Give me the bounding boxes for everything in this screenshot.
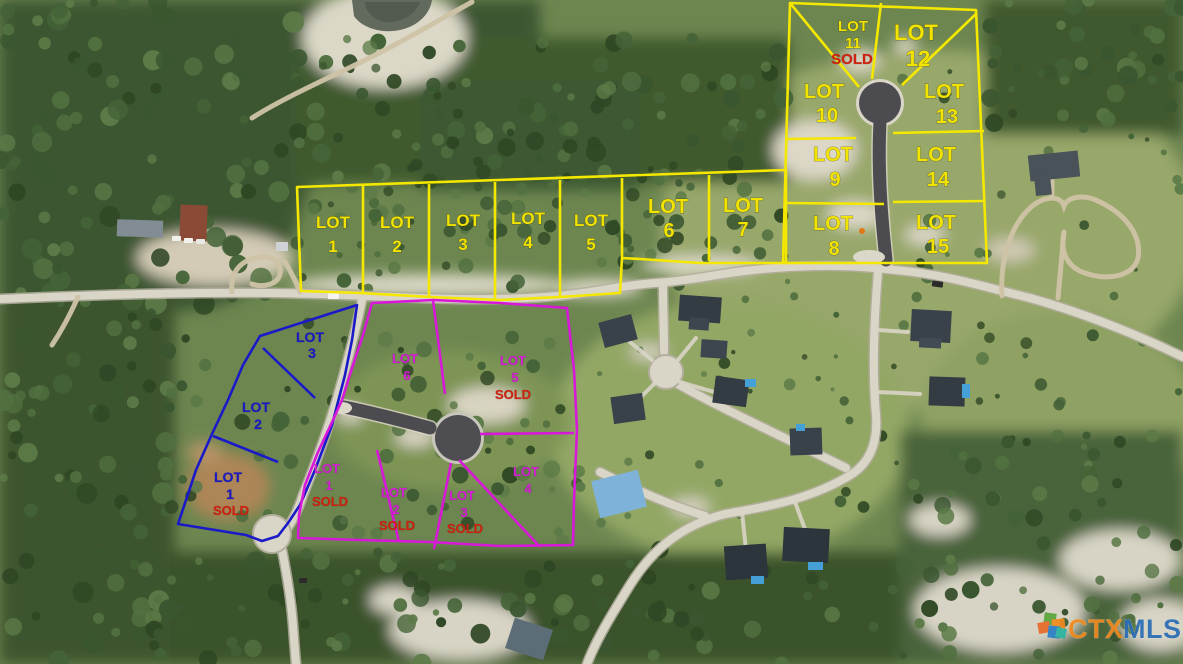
- yellow-lot-11-status: SOLD: [831, 51, 873, 68]
- watermark-mls-text: MLS: [1123, 614, 1182, 644]
- magenta-lot-2-number: 2: [392, 502, 399, 517]
- magenta-lot-1-status: SOLD: [312, 494, 348, 509]
- magenta-lot-2-word: LOT: [381, 485, 407, 500]
- magenta-lot-5-number: 5: [511, 370, 518, 385]
- magenta-lot-3-number: 3: [460, 505, 467, 520]
- yellow-lot-10-word: LOT: [804, 81, 844, 103]
- magenta-lot-4-number: 4: [524, 481, 532, 496]
- yellow-lot-1-word: LOT: [316, 213, 351, 232]
- magenta-lot-5-status: SOLD: [495, 387, 531, 402]
- yellow-lot-3-number: 3: [458, 235, 467, 254]
- yellow-lot-2-number: 2: [392, 237, 401, 256]
- blue-lot-1-number: 1: [226, 486, 234, 502]
- yellow-lot-9-number: 9: [829, 169, 840, 191]
- magenta-lot-6-number: 6: [403, 368, 410, 383]
- magenta-lot-4-word: LOT: [513, 464, 539, 479]
- yellow-lot-4-word: LOT: [511, 209, 546, 228]
- yellow-lot-7-word: LOT: [723, 195, 763, 217]
- cul-de-sac-southwest: [253, 515, 291, 553]
- yellow-lot-4-number: 4: [523, 233, 533, 252]
- watermark-ctx-text: CTX: [1068, 614, 1124, 644]
- terrain-layer: [0, 0, 1183, 664]
- aerial-lot-map-photo: LOT 1 LOT 2 LOT 3 LOT 4 LOT 5 LOT 6 LOT …: [0, 0, 1183, 664]
- yellow-lot-13-word: LOT: [924, 81, 964, 103]
- yellow-lot-15-number: 15: [927, 236, 949, 258]
- yellow-lot-6-word: LOT: [648, 196, 688, 218]
- yellow-lot-5-word: LOT: [574, 211, 609, 230]
- magenta-lot-1-number: 1: [325, 478, 332, 493]
- yellow-lot-12-word: LOT: [894, 20, 939, 45]
- yellow-lot-14-number: 14: [927, 169, 950, 191]
- yellow-lot-13-number: 13: [936, 106, 958, 128]
- yellow-lot-5-number: 5: [586, 235, 595, 254]
- yellow-lot-2-word: LOT: [380, 213, 415, 232]
- yellow-lot-8-number: 8: [828, 238, 839, 260]
- magenta-lot-2-status: SOLD: [379, 518, 415, 533]
- blue-lot-3-number: 3: [308, 345, 316, 361]
- yellow-lot-10-number: 10: [816, 105, 838, 127]
- yellow-lot-6-number: 6: [663, 220, 674, 242]
- blue-lot-3-word: LOT: [296, 329, 324, 345]
- yellow-lot-7-number: 7: [737, 219, 748, 241]
- aerial-map-svg: LOT 1 LOT 2 LOT 3 LOT 4 LOT 5 LOT 6 LOT …: [0, 0, 1183, 664]
- magenta-lot-3-word: LOT: [449, 488, 475, 503]
- yellow-lot-9-word: LOT: [813, 144, 853, 166]
- magenta-lot-3-status: SOLD: [447, 521, 483, 536]
- yellow-lot-11-word: LOT: [838, 18, 868, 35]
- yellow-lot-11-number: 11: [845, 35, 861, 52]
- yellow-lot-1-number: 1: [328, 237, 337, 256]
- yellow-lot-12-number: 12: [906, 46, 930, 71]
- magenta-lot-1-word: LOT: [314, 461, 340, 476]
- blue-lot-2-word: LOT: [242, 399, 270, 415]
- blue-lot-2-number: 2: [254, 416, 262, 432]
- yellow-lot-15-word: LOT: [916, 212, 956, 234]
- blue-lot-1-word: LOT: [214, 469, 242, 485]
- blue-lot-1-status: SOLD: [213, 503, 249, 518]
- yellow-lot-8-word: LOT: [813, 213, 853, 235]
- magenta-lot-6-word: LOT: [392, 351, 418, 366]
- yellow-lot-3-word: LOT: [446, 211, 481, 230]
- yellow-lot-14-word: LOT: [916, 144, 956, 166]
- magenta-lot-5-word: LOT: [500, 353, 526, 368]
